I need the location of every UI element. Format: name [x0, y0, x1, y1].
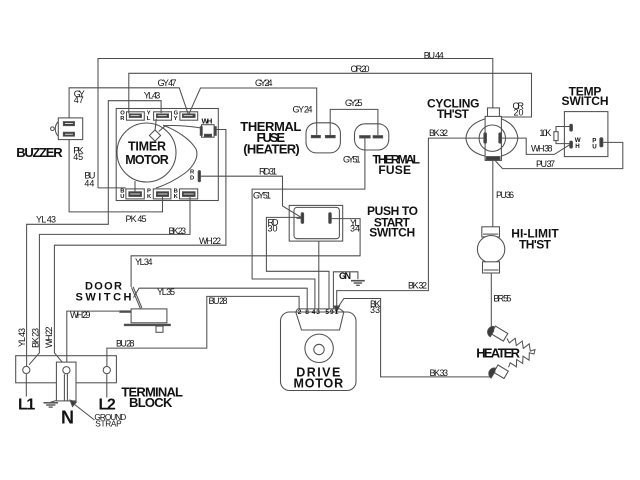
svg-text:PU 36: PU 36 — [496, 190, 514, 200]
svg-text:MOTOR: MOTOR — [125, 153, 169, 167]
svg-text:WH 38: WH 38 — [531, 143, 553, 153]
svg-text:L1: L1 — [18, 397, 35, 414]
svg-text:BLOCK: BLOCK — [129, 395, 173, 410]
svg-text:PU 37: PU 37 — [536, 159, 555, 169]
svg-text:RD 31: RD 31 — [259, 167, 277, 177]
svg-text:WH 22: WH 22 — [199, 236, 221, 246]
svg-text:YL 43: YL 43 — [144, 91, 161, 101]
svg-text:BU 28: BU 28 — [209, 296, 228, 306]
svg-text:GY 24: GY 24 — [255, 78, 273, 88]
svg-text:BK 33: BK 33 — [430, 368, 449, 378]
svg-text:GN: GN — [339, 271, 351, 281]
svg-text:PK 45: PK 45 — [126, 214, 147, 224]
svg-text:33: 33 — [370, 305, 380, 315]
svg-text:YL 35: YL 35 — [157, 287, 175, 297]
svg-text:WH: WH — [202, 116, 213, 125]
svg-text:BU 44: BU 44 — [424, 51, 444, 61]
svg-text:GY 47: GY 47 — [158, 78, 177, 88]
svg-text:44: 44 — [84, 178, 94, 188]
svg-text:BK 23: BK 23 — [169, 226, 187, 236]
svg-text:TIMER: TIMER — [128, 140, 166, 154]
svg-text:TH'ST: TH'ST — [437, 107, 470, 121]
svg-text:8: 8 — [305, 309, 309, 316]
svg-text:BR 55: BR 55 — [493, 293, 511, 303]
svg-text:H: H — [575, 143, 580, 150]
svg-text:47: 47 — [74, 95, 84, 105]
svg-text:Y: Y — [174, 116, 178, 122]
svg-text:U: U — [592, 143, 597, 150]
svg-text:BK 23: BK 23 — [31, 328, 41, 348]
svg-text:YL 34: YL 34 — [135, 257, 153, 267]
svg-text:34: 34 — [350, 223, 360, 233]
svg-text:OR 20: OR 20 — [351, 64, 370, 74]
svg-text:GY 25: GY 25 — [345, 98, 363, 108]
svg-text:TH'ST: TH'ST — [519, 237, 552, 251]
svg-text:DOOR: DOOR — [85, 280, 122, 292]
svg-text:9: 9 — [330, 309, 334, 316]
svg-text:SWITCH: SWITCH — [562, 94, 609, 108]
svg-text:(HEATER): (HEATER) — [243, 141, 300, 156]
svg-text:30: 30 — [268, 224, 278, 234]
svg-text:BUZZER: BUZZER — [16, 145, 63, 160]
svg-text:MOTOR: MOTOR — [294, 377, 344, 391]
svg-text:3: 3 — [316, 309, 320, 316]
svg-text:SWITCH: SWITCH — [369, 225, 415, 239]
svg-text:YL 43: YL 43 — [36, 214, 56, 224]
svg-text:1: 1 — [335, 309, 339, 316]
svg-text:WH 29: WH 29 — [70, 310, 91, 320]
svg-text:BK 32: BK 32 — [408, 281, 427, 291]
svg-text:4: 4 — [312, 309, 316, 316]
svg-text:BK 32: BK 32 — [429, 128, 448, 138]
svg-text:YL 43: YL 43 — [17, 328, 27, 347]
svg-text:BU 28: BU 28 — [116, 339, 135, 349]
svg-text:L: L — [147, 116, 151, 122]
svg-text:STRAP: STRAP — [95, 419, 122, 429]
svg-text:GY 51: GY 51 — [343, 155, 361, 165]
svg-text:GY 24: GY 24 — [293, 104, 313, 114]
svg-text:45: 45 — [73, 152, 83, 162]
svg-text:HEATER: HEATER — [476, 345, 520, 360]
svg-text:10K: 10K — [539, 128, 551, 138]
svg-text:2: 2 — [298, 309, 302, 316]
svg-text:20: 20 — [514, 107, 524, 117]
svg-text:U: U — [120, 194, 124, 200]
svg-text:5: 5 — [325, 309, 329, 316]
svg-text:GY 51: GY 51 — [253, 190, 271, 200]
svg-text:D: D — [190, 175, 194, 181]
svg-text:FUSE: FUSE — [378, 163, 411, 177]
svg-text:N: N — [61, 408, 74, 428]
svg-text:WH 22: WH 22 — [44, 327, 54, 349]
svg-text:L2: L2 — [99, 396, 116, 413]
